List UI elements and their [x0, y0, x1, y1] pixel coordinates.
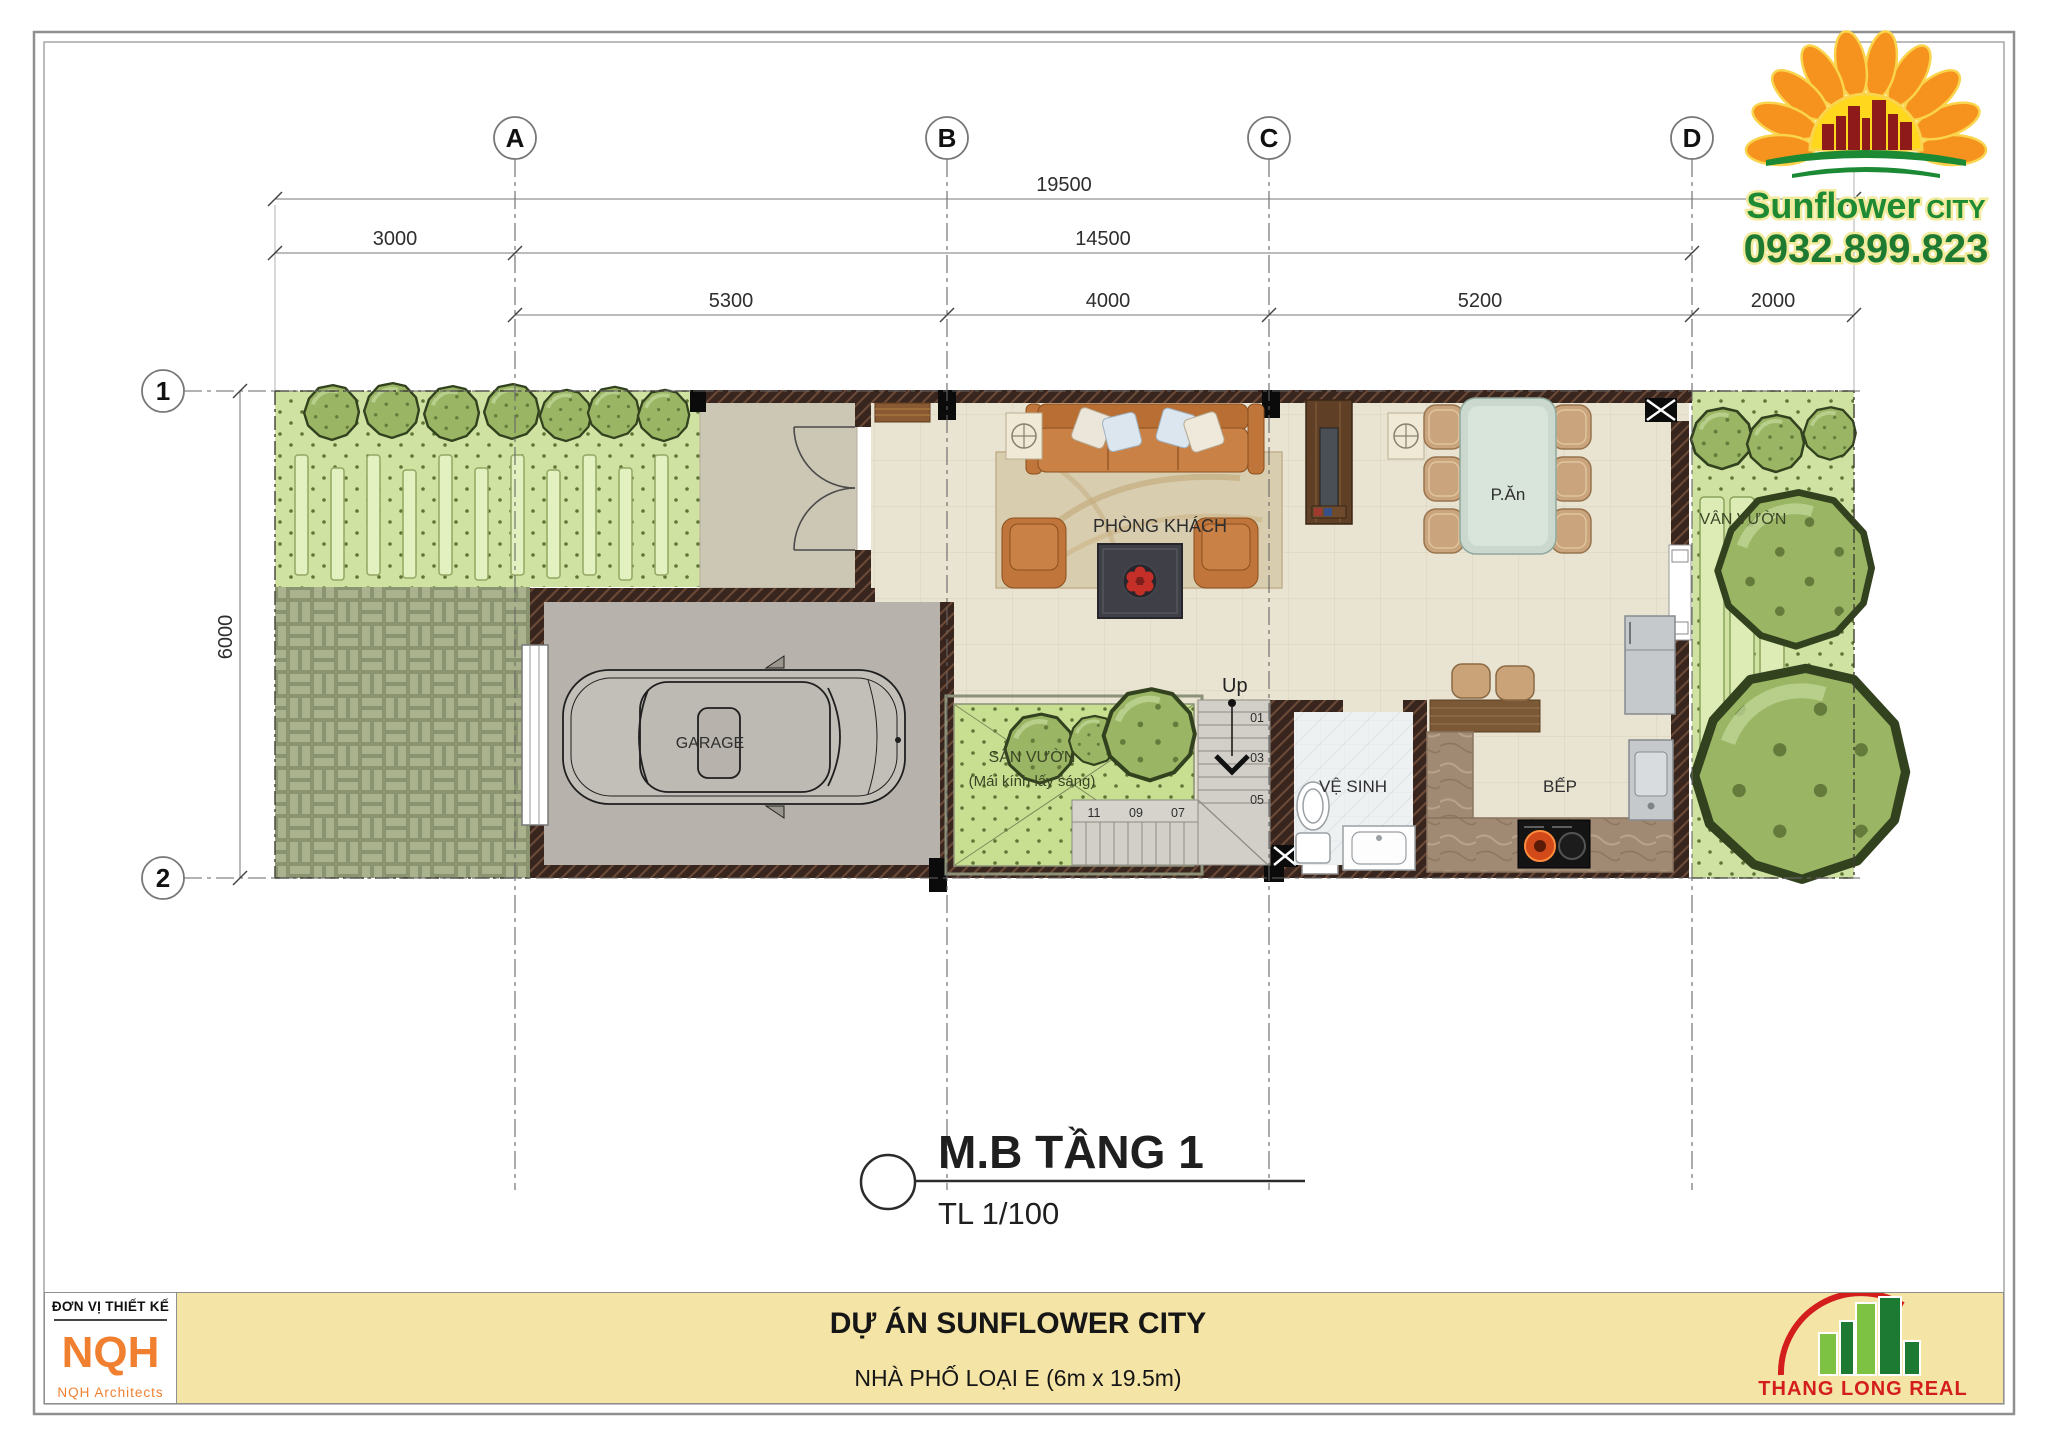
- label-side-garden: VÂN VƯỜN: [1700, 509, 1787, 528]
- grid-bubble-1: 1: [156, 376, 170, 406]
- plan-scale: TL 1/100: [938, 1196, 1059, 1231]
- dining-table: [1460, 398, 1556, 554]
- logo-phone: 0932.899.823: [1744, 227, 1989, 271]
- stair-num-05: 05: [1250, 793, 1264, 807]
- stair-num-11: 11: [1088, 806, 1101, 820]
- side-table-right: [1388, 413, 1424, 459]
- coffee-table: [1098, 544, 1182, 618]
- plan-title: M.B TẦNG 1: [938, 1126, 1204, 1178]
- logo-brand-text: SunflowerCITY: [1746, 185, 1985, 226]
- dim-cd: 5200: [1458, 290, 1503, 312]
- logo-ground-2: [1792, 167, 1940, 178]
- dim-total: 19500: [1036, 174, 1092, 196]
- designer-name: NQH: [62, 1331, 160, 1375]
- garage-door: [522, 645, 548, 825]
- stair-num-07: 07: [1171, 806, 1185, 820]
- project-name: DỰ ÁN SUNFLOWER CITY: [830, 1307, 1207, 1341]
- designer-box: ĐƠN VỊ THIẾT KẾ NQH NQH Architects: [45, 1293, 177, 1403]
- dim-mid: 14500: [1075, 228, 1131, 250]
- dim-bc: 4000: [1086, 290, 1131, 312]
- drawing-title: M.B TẦNG 1 TL 1/100: [861, 1126, 1305, 1231]
- entry-threshold: [875, 403, 930, 422]
- kitchen-sink: [1629, 740, 1673, 820]
- label-dining: P.Ăn: [1491, 485, 1526, 504]
- label-courtyard: SÂN VƯỜN: [989, 747, 1076, 766]
- designer-label: ĐƠN VỊ THIẾT KẾ: [52, 1299, 169, 1314]
- sofa: [1026, 404, 1264, 474]
- developer-name: THANG LONG REAL: [1733, 1378, 1993, 1401]
- project-strip: DỰ ÁN SUNFLOWER CITY NHÀ PHỐ LOẠI E (6m …: [177, 1293, 2003, 1403]
- stair-num-09: 09: [1129, 806, 1143, 820]
- grid-bubble-a: A: [506, 123, 525, 153]
- sunflower-city-logo: SunflowerCITY 0932.899.823: [1726, 28, 2006, 280]
- label-garage: GARAGE: [676, 735, 744, 752]
- tv-cabinet: [1306, 400, 1352, 524]
- driveway-paving: [275, 587, 530, 878]
- stair-num-03: 03: [1250, 751, 1264, 765]
- developer-logo: THANG LONG REAL: [1733, 1293, 1993, 1403]
- grid-bubble-c: C: [1260, 123, 1279, 153]
- title-block-bar: ĐƠN VỊ THIẾT KẾ NQH NQH Architects DỰ ÁN…: [44, 1292, 2004, 1404]
- bath-sink: [1343, 826, 1415, 870]
- floor-plan-sheet: A B C D 1 2 19500 3000 14500 5300 4000 5…: [0, 0, 2048, 1448]
- thang-long-buildings: [1743, 1293, 1983, 1377]
- dining-area: [1424, 398, 1591, 554]
- bar-counter: [1430, 700, 1540, 732]
- stair-num-01: 01: [1250, 711, 1264, 725]
- label-kitchen: BẾP: [1543, 777, 1577, 796]
- side-table-left: [1006, 413, 1042, 459]
- side-garden: [1691, 391, 1906, 879]
- designer-subtitle: NQH Architects: [57, 1385, 163, 1400]
- grid-bubble-2: 2: [156, 863, 170, 893]
- stove: [1518, 820, 1590, 868]
- dim-d-end: 2000: [1751, 290, 1796, 312]
- divider: [54, 1319, 167, 1321]
- dim-depth: 6000: [215, 615, 237, 660]
- label-bath: VỆ SINH: [1319, 777, 1387, 796]
- label-stairs-up: Up: [1222, 675, 1248, 697]
- project-type: NHÀ PHỐ LOẠI E (6m x 19.5m): [854, 1365, 1181, 1392]
- dim-left: 3000: [373, 228, 418, 250]
- dim-ab: 5300: [709, 290, 754, 312]
- fridge: [1625, 616, 1675, 714]
- grid-bubble-b: B: [938, 123, 957, 153]
- grid-bubble-d: D: [1683, 123, 1702, 153]
- label-courtyard-note: (Mái kính lấy sáng): [969, 773, 1096, 790]
- porch-floor: [700, 402, 857, 588]
- label-living: PHÒNG KHÁCH: [1093, 515, 1227, 536]
- armchair-left: [1002, 518, 1066, 588]
